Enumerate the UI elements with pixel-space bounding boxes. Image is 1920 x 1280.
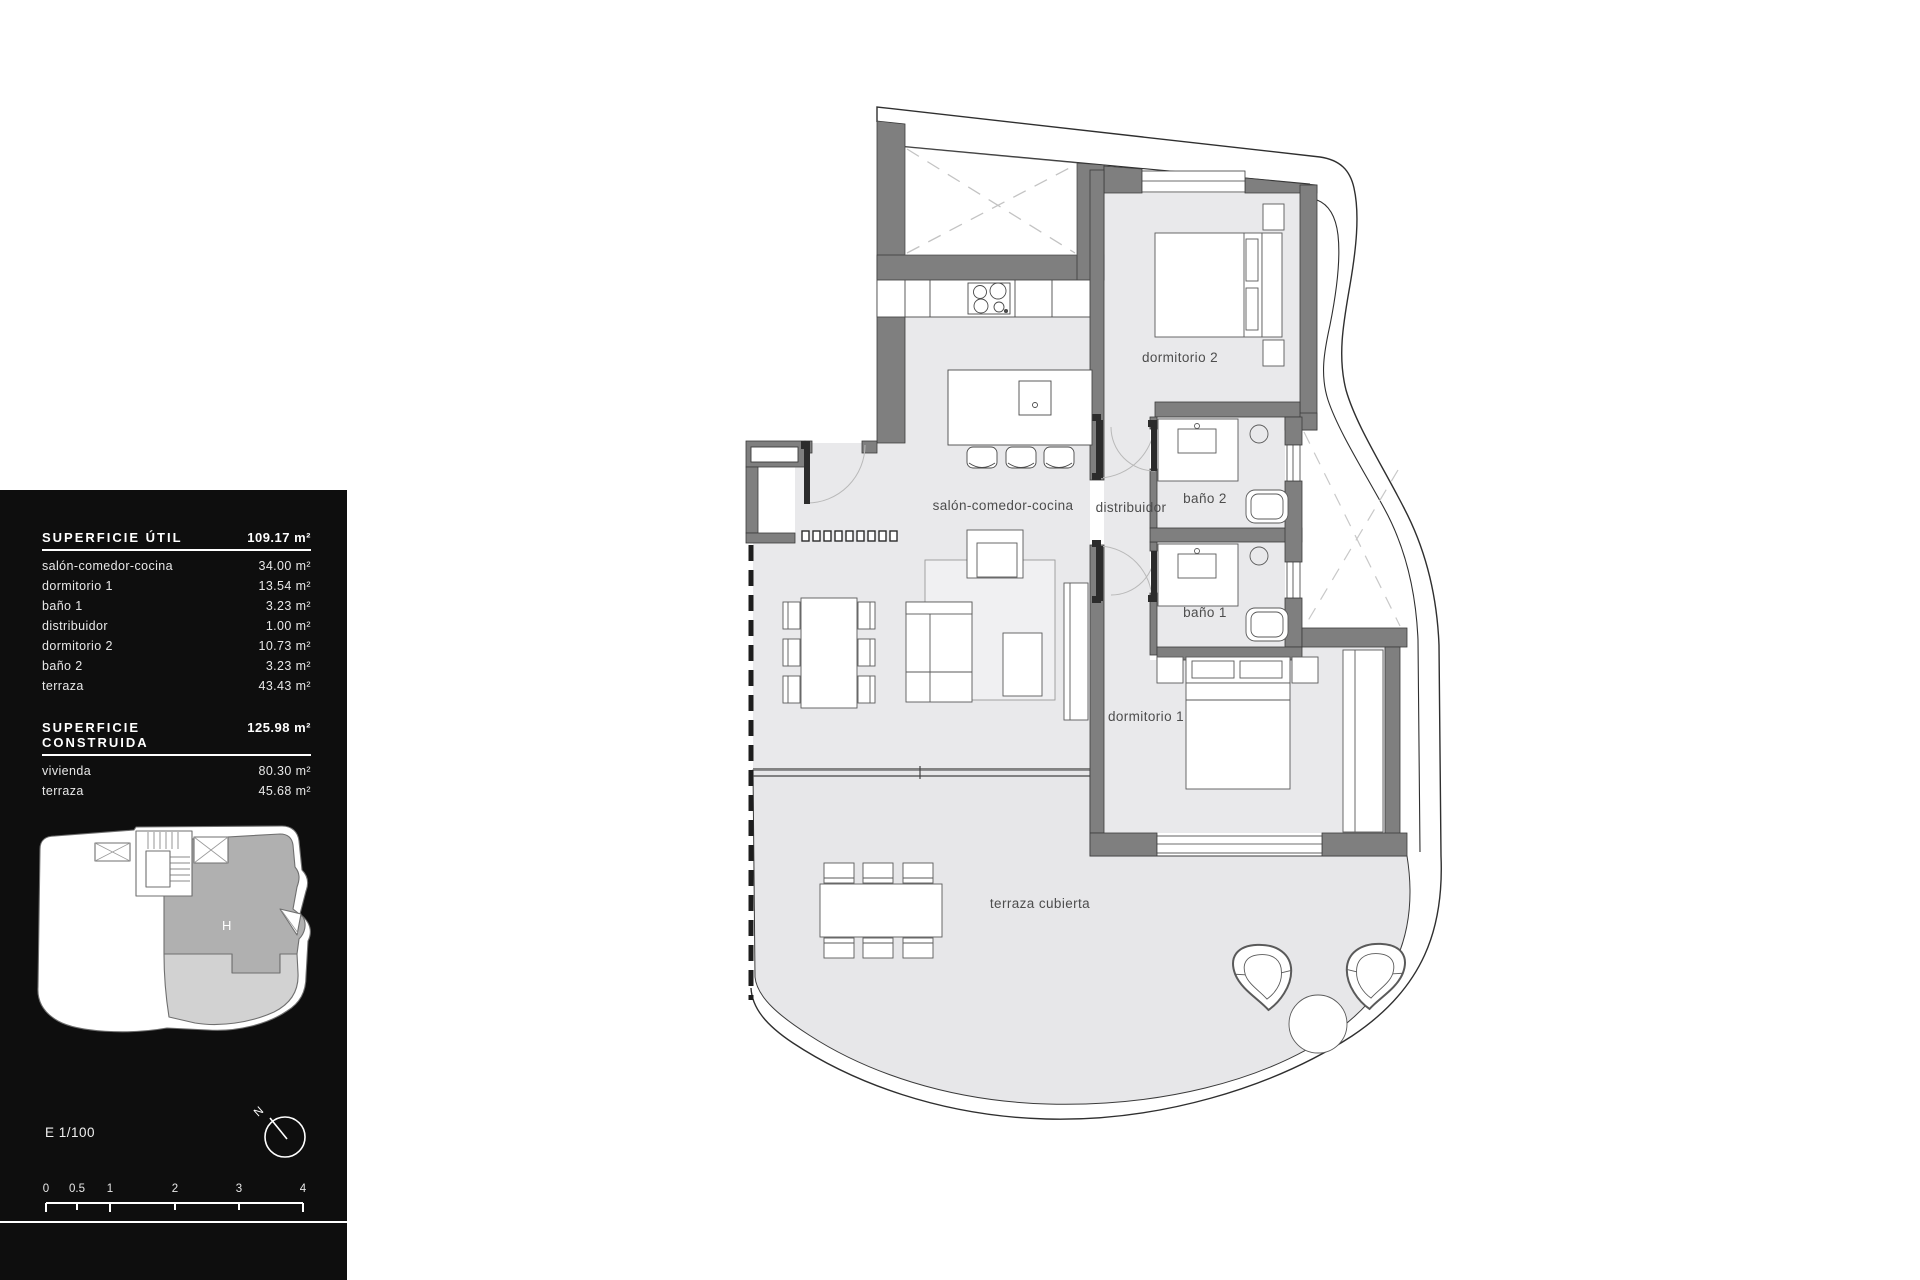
tv-sideboard [1064,583,1088,720]
row-value: 43.43 m² [258,676,311,696]
label-bano2: baño 2 [1183,491,1227,506]
scale-tick-label: 0.5 [69,1183,85,1195]
key-plan-icon: H [18,823,333,1038]
mullion-squares [802,531,897,541]
hob-icon [968,283,1010,314]
wardrobe [1343,650,1383,832]
row-value: 3.23 m² [266,656,311,676]
row-label: vivienda [42,761,91,781]
row-value: 34.00 m² [258,556,311,576]
coffee-table [1003,633,1042,696]
row-label: terraza [42,676,84,696]
superficie-util-section: SUPERFICIE ÚTIL 109.17 m² salón-comedor-… [42,530,311,696]
row-value: 45.68 m² [258,781,311,801]
label-dormitorio1: dormitorio 1 [1108,709,1184,724]
table-row: baño 23.23 m² [42,656,311,676]
scale-tick-label: 3 [236,1183,242,1195]
table-row: vivienda80.30 m² [42,761,311,781]
superficie-util-title: SUPERFICIE ÚTIL [42,530,183,545]
row-value: 10.73 m² [258,636,311,656]
superficie-construida-title: SUPERFICIE CONSTRUIDA [42,720,247,750]
shaft-patio [905,147,1077,255]
label-salon: salón-comedor-cocina [933,498,1074,513]
row-label: terraza [42,781,84,801]
armchair [967,530,1023,578]
table-row: salón-comedor-cocina34.00 m² [42,556,311,576]
scale-tick-label: 4 [300,1183,307,1195]
outdoor-dining-table [820,863,942,958]
table-row: dormitorio 210.73 m² [42,636,311,656]
row-label: baño 2 [42,656,83,676]
row-value: 13.54 m² [258,576,311,596]
kitchen-island [948,370,1092,468]
table-row: dormitorio 113.54 m² [42,576,311,596]
row-label: salón-comedor-cocina [42,556,173,576]
area-tables: SUPERFICIE ÚTIL 109.17 m² salón-comedor-… [42,530,311,801]
row-value: 1.00 m² [266,616,311,636]
superficie-construida-section: SUPERFICIE CONSTRUIDA 125.98 m² vivienda… [42,720,311,801]
label-dormitorio2: dormitorio 2 [1142,350,1218,365]
superficie-construida-rows: vivienda80.30 m² terraza45.68 m² [42,761,311,801]
label-bano1: baño 1 [1183,605,1227,620]
scale-tick-label: 0 [43,1183,49,1195]
table-row: terraza45.68 m² [42,781,311,801]
key-plan-unit-label: H [222,918,231,933]
superficie-util-heading: SUPERFICIE ÚTIL 109.17 m² [42,530,311,551]
floor-plan: salón-comedor-cocina distribuidor baño 2… [700,80,1600,1200]
row-label: distribuidor [42,616,108,636]
info-panel: SUPERFICIE ÚTIL 109.17 m² salón-comedor-… [0,490,347,1280]
row-label: baño 1 [42,596,83,616]
superficie-util-rows: salón-comedor-cocina34.00 m² dormitorio … [42,556,311,696]
scale-bar: 0 0.5 1 2 3 4 [43,1183,307,1212]
table-row: distribuidor1.00 m² [42,616,311,636]
label-terraza: terraza cubierta [990,896,1090,911]
scale-label: E 1/100 [45,1125,95,1140]
north-compass-icon: N [252,1105,305,1157]
scale-tick-label: 1 [107,1183,113,1195]
floorplan-sheet: SUPERFICIE ÚTIL 109.17 m² salón-comedor-… [0,0,1920,1280]
sofa [906,602,972,702]
dining-table-indoor [783,598,875,708]
north-label: N [252,1105,266,1119]
row-value: 3.23 m² [266,596,311,616]
superficie-util-total: 109.17 m² [247,530,311,545]
row-label: dormitorio 1 [42,576,113,596]
outdoor-side-table [1289,995,1347,1053]
table-row: terraza43.43 m² [42,676,311,696]
row-label: dormitorio 2 [42,636,113,656]
superficie-construida-heading: SUPERFICIE CONSTRUIDA 125.98 m² [42,720,311,756]
table-row: baño 13.23 m² [42,596,311,616]
superficie-construida-total: 125.98 m² [247,720,311,735]
panel-footer: E 1/100 N 0 0.5 1 2 3 4 [0,1045,347,1280]
scale-tick-label: 2 [172,1183,178,1195]
row-value: 80.30 m² [258,761,311,781]
label-distribuidor: distribuidor [1096,500,1167,515]
shaft-right [1304,432,1400,626]
